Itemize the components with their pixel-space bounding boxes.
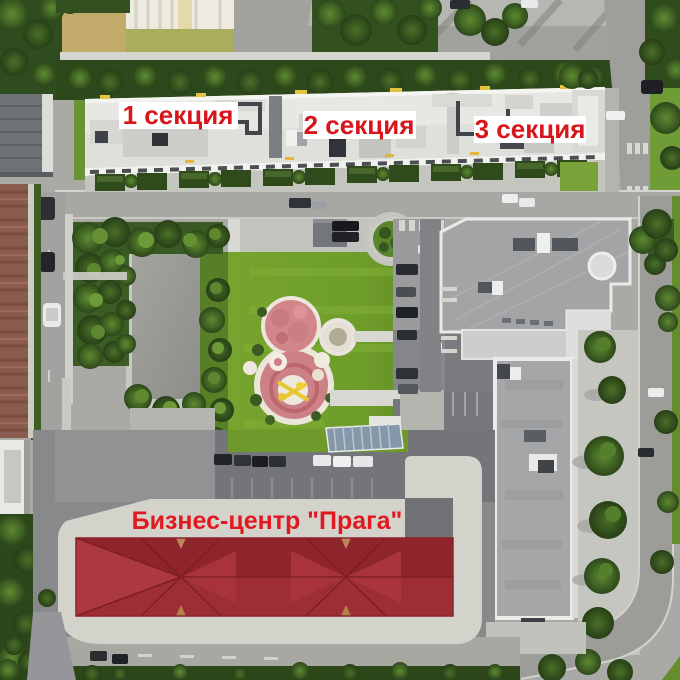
svg-text:2 секция: 2 секция: [304, 110, 415, 140]
svg-text:3 секция: 3 секция: [475, 114, 586, 144]
svg-text:1 секция: 1 секция: [123, 100, 234, 130]
svg-text:Бизнес-центр "Прага": Бизнес-центр "Прага": [132, 507, 403, 535]
